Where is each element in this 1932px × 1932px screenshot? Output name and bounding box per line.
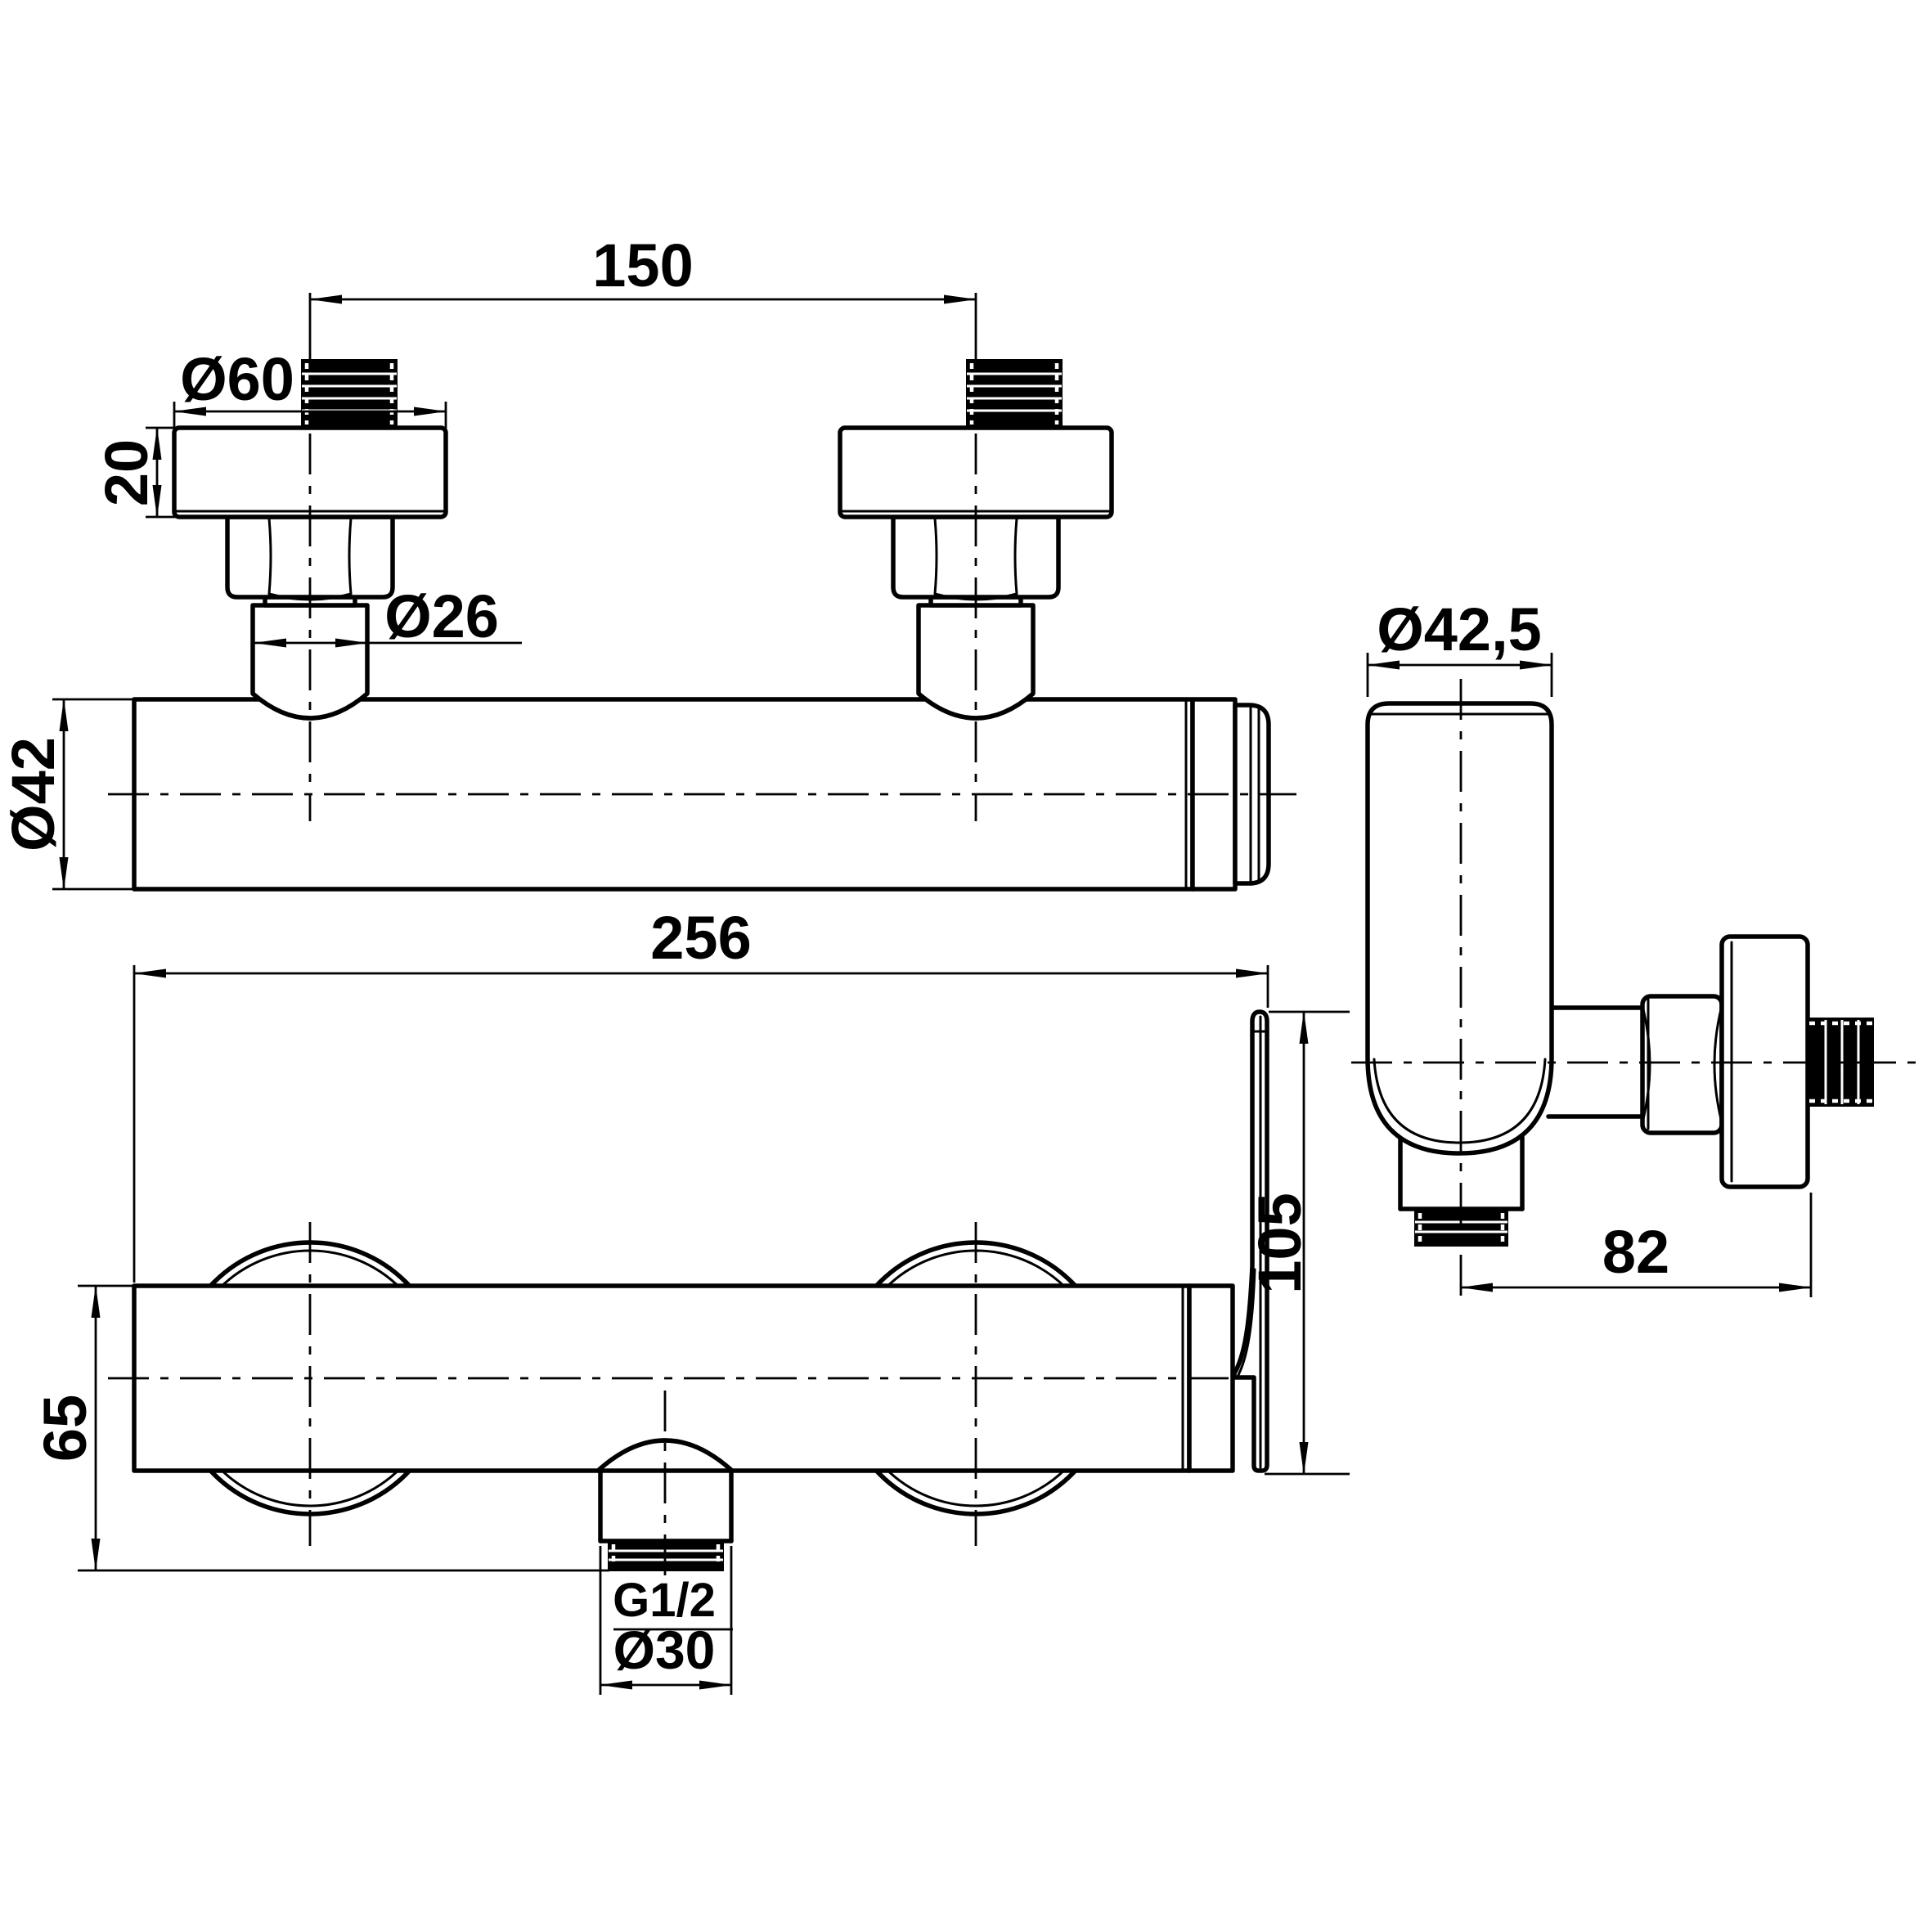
- wall-union-nut: [1642, 996, 1722, 1133]
- side-view: Ø42,5 82: [1351, 595, 1921, 1304]
- dim-overall-length-label: 256: [650, 904, 751, 972]
- bottom-view: 256 65 105 G1/2 Ø30: [31, 904, 1350, 1695]
- dim-union-connector-diameter-label: Ø26: [384, 582, 499, 650]
- dim-union-spacing-label: 150: [592, 231, 693, 299]
- dim-escutcheon-height-label: 20: [92, 439, 160, 506]
- dim-escutcheon-diameter-label: Ø60: [180, 345, 294, 413]
- dim-escutcheon-height: 20: [92, 428, 176, 517]
- supply-thread-nipple: [967, 360, 1062, 428]
- dim-wall-projection-label: 82: [1602, 1218, 1669, 1286]
- dim-overall-length: 256: [134, 904, 1268, 1283]
- mixer-bar-body: [134, 699, 1193, 889]
- dim-outlet-collar-diameter-label: Ø30: [613, 1620, 716, 1680]
- handle-body: [1368, 703, 1552, 1153]
- dim-handle-diameter-label: Ø42,5: [1377, 595, 1542, 663]
- shower-mixer-technical-drawing: 150 Ø60 20 Ø26 Ø42: [0, 0, 1932, 1932]
- dim-handle-length-label: 105: [1246, 1193, 1314, 1293]
- dim-union-spacing: 150: [310, 231, 976, 361]
- dim-bar-diameter-label: Ø42: [0, 737, 67, 851]
- dim-overall-depth-label: 65: [31, 1395, 99, 1462]
- supply-thread-nipple: [302, 360, 397, 428]
- front-view: 150 Ø60 20 Ø26 Ø42: [0, 231, 1296, 889]
- dim-handle-diameter: Ø42,5: [1368, 595, 1552, 697]
- technical-drawing-page: 150 Ø60 20 Ø26 Ø42: [0, 0, 1932, 1932]
